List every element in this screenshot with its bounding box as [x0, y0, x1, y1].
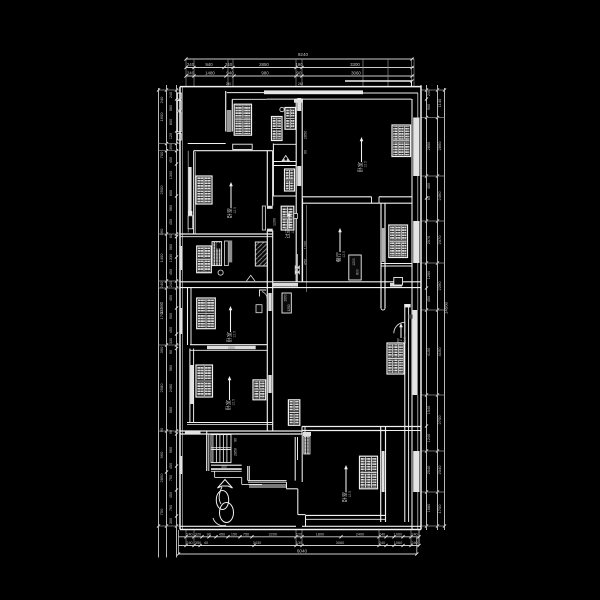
svg-text:960: 960 — [159, 451, 164, 458]
svg-text:120: 120 — [169, 133, 173, 139]
svg-text:240: 240 — [169, 92, 173, 98]
svg-text:2850: 2850 — [284, 294, 288, 301]
svg-text:2700: 2700 — [437, 415, 442, 425]
svg-text:450: 450 — [219, 532, 225, 536]
svg-text:450: 450 — [169, 269, 173, 275]
svg-text:12.5: 12.5 — [231, 399, 235, 406]
svg-text:12.5: 12.5 — [342, 251, 346, 258]
svg-text:240: 240 — [427, 90, 431, 96]
svg-text:12.5: 12.5 — [348, 491, 352, 498]
svg-text:60: 60 — [427, 196, 431, 200]
svg-text:240: 240 — [225, 62, 233, 67]
svg-text:12.5: 12.5 — [232, 331, 236, 338]
svg-text:450: 450 — [169, 327, 173, 333]
svg-text:980: 980 — [169, 205, 173, 211]
svg-text:2070: 2070 — [427, 236, 431, 244]
svg-text:2850: 2850 — [427, 142, 431, 150]
svg-text:3430: 3430 — [253, 541, 261, 545]
svg-text:980: 980 — [169, 365, 173, 371]
svg-text:1140: 1140 — [437, 98, 442, 107]
svg-text:240: 240 — [379, 532, 385, 536]
svg-text:450: 450 — [169, 295, 173, 301]
svg-text:9240: 9240 — [298, 52, 309, 57]
svg-text:560: 560 — [169, 105, 173, 111]
svg-text:1700: 1700 — [159, 310, 164, 320]
svg-text:90: 90 — [297, 71, 302, 76]
svg-text:450: 450 — [304, 259, 308, 265]
svg-text:120: 120 — [296, 532, 302, 536]
svg-text:450: 450 — [169, 463, 173, 469]
svg-text:90: 90 — [169, 430, 173, 434]
svg-text:240: 240 — [187, 71, 195, 76]
svg-text:2850: 2850 — [259, 62, 269, 67]
svg-text:960: 960 — [169, 447, 173, 453]
svg-text:390: 390 — [169, 144, 173, 150]
svg-text:6040: 6040 — [297, 548, 308, 553]
svg-text:400: 400 — [427, 183, 431, 189]
svg-text:1680: 1680 — [427, 504, 431, 512]
svg-text:1200: 1200 — [287, 304, 291, 311]
svg-text:450: 450 — [169, 492, 173, 498]
svg-text:240: 240 — [186, 532, 192, 536]
svg-text:150: 150 — [231, 532, 237, 536]
svg-text:1060: 1060 — [394, 532, 402, 536]
svg-text:1600: 1600 — [159, 112, 164, 122]
svg-text:2040: 2040 — [437, 465, 442, 475]
svg-text:750: 750 — [243, 532, 249, 536]
svg-text:240: 240 — [169, 281, 173, 287]
svg-text:240: 240 — [379, 541, 385, 545]
svg-text:2070: 2070 — [437, 235, 442, 245]
svg-text:300: 300 — [169, 518, 173, 524]
svg-text:2850: 2850 — [437, 141, 442, 151]
svg-text:2850: 2850 — [159, 473, 164, 483]
svg-text:12.5: 12.5 — [291, 227, 295, 234]
svg-text:2260: 2260 — [437, 281, 442, 291]
svg-text:240: 240 — [159, 281, 164, 288]
svg-text:240: 240 — [159, 96, 164, 103]
svg-text:2400: 2400 — [356, 532, 364, 536]
svg-text:980: 980 — [261, 71, 269, 76]
svg-text:800: 800 — [356, 269, 360, 275]
svg-text:450: 450 — [169, 219, 173, 225]
svg-text:3300: 3300 — [350, 62, 360, 67]
svg-text:700: 700 — [159, 151, 164, 158]
svg-text:900: 900 — [427, 104, 431, 110]
svg-text:240: 240 — [226, 82, 232, 86]
svg-text:12.5: 12.5 — [233, 207, 237, 214]
svg-text:2040: 2040 — [427, 466, 431, 474]
svg-text:2200: 2200 — [269, 532, 277, 536]
svg-text:240: 240 — [298, 82, 304, 86]
svg-text:1060: 1060 — [394, 541, 402, 545]
svg-text:450: 450 — [169, 157, 173, 163]
svg-text:2850: 2850 — [234, 448, 238, 456]
svg-text:240: 240 — [186, 541, 192, 545]
svg-text:940: 940 — [226, 71, 234, 76]
svg-text:2460: 2460 — [437, 191, 442, 201]
svg-text:60: 60 — [169, 234, 173, 238]
svg-text:900: 900 — [169, 313, 173, 319]
svg-text:330: 330 — [169, 338, 173, 344]
svg-text:40: 40 — [204, 541, 208, 545]
svg-text:450: 450 — [427, 296, 431, 302]
svg-text:190: 190 — [295, 62, 303, 67]
svg-text:1200: 1200 — [273, 218, 277, 226]
svg-text:560: 560 — [169, 244, 173, 250]
svg-text:2500: 2500 — [159, 185, 164, 195]
svg-text:760: 760 — [169, 505, 173, 511]
svg-text:1540: 1540 — [427, 406, 431, 414]
svg-text:1400: 1400 — [159, 253, 164, 263]
svg-text:800: 800 — [169, 119, 173, 125]
svg-text:560: 560 — [169, 407, 173, 413]
svg-text:130: 130 — [296, 541, 302, 545]
svg-text:1200: 1200 — [352, 258, 356, 266]
svg-text:90: 90 — [234, 438, 238, 442]
svg-text:1800: 1800 — [316, 532, 324, 536]
svg-text:390: 390 — [159, 346, 164, 353]
svg-text:750: 750 — [159, 508, 164, 515]
svg-text:240: 240 — [187, 62, 195, 67]
svg-text:4150: 4150 — [437, 347, 442, 357]
svg-text:240: 240 — [411, 541, 417, 545]
svg-text:350: 350 — [195, 541, 201, 545]
svg-text:240: 240 — [411, 532, 417, 536]
svg-text:320: 320 — [195, 532, 201, 536]
svg-text:90: 90 — [169, 350, 173, 354]
svg-text:90: 90 — [207, 532, 211, 536]
svg-text:3060: 3060 — [336, 541, 344, 545]
svg-text:1700: 1700 — [437, 504, 442, 514]
svg-text:1200: 1200 — [304, 241, 308, 249]
svg-text:3060: 3060 — [351, 71, 361, 76]
svg-text:4150: 4150 — [427, 348, 431, 356]
svg-text:2480: 2480 — [169, 384, 173, 392]
svg-text:750: 750 — [169, 475, 173, 481]
svg-text:2850: 2850 — [304, 131, 308, 139]
svg-text:90: 90 — [304, 150, 308, 154]
svg-text:1240: 1240 — [427, 434, 431, 442]
svg-text:90: 90 — [159, 427, 164, 432]
svg-text:940: 940 — [205, 62, 213, 67]
svg-text:1330: 1330 — [169, 254, 173, 262]
svg-text:1260: 1260 — [427, 271, 431, 279]
svg-text:2850: 2850 — [228, 346, 236, 350]
svg-text:450: 450 — [221, 465, 227, 469]
svg-text:2580: 2580 — [159, 383, 164, 393]
svg-text:360: 360 — [159, 228, 164, 235]
svg-text:12.5: 12.5 — [363, 161, 367, 168]
svg-text:600: 600 — [169, 190, 173, 196]
svg-text:1300: 1300 — [169, 171, 173, 179]
svg-text:1480: 1480 — [205, 71, 215, 76]
svg-text:14560: 14560 — [444, 301, 449, 314]
